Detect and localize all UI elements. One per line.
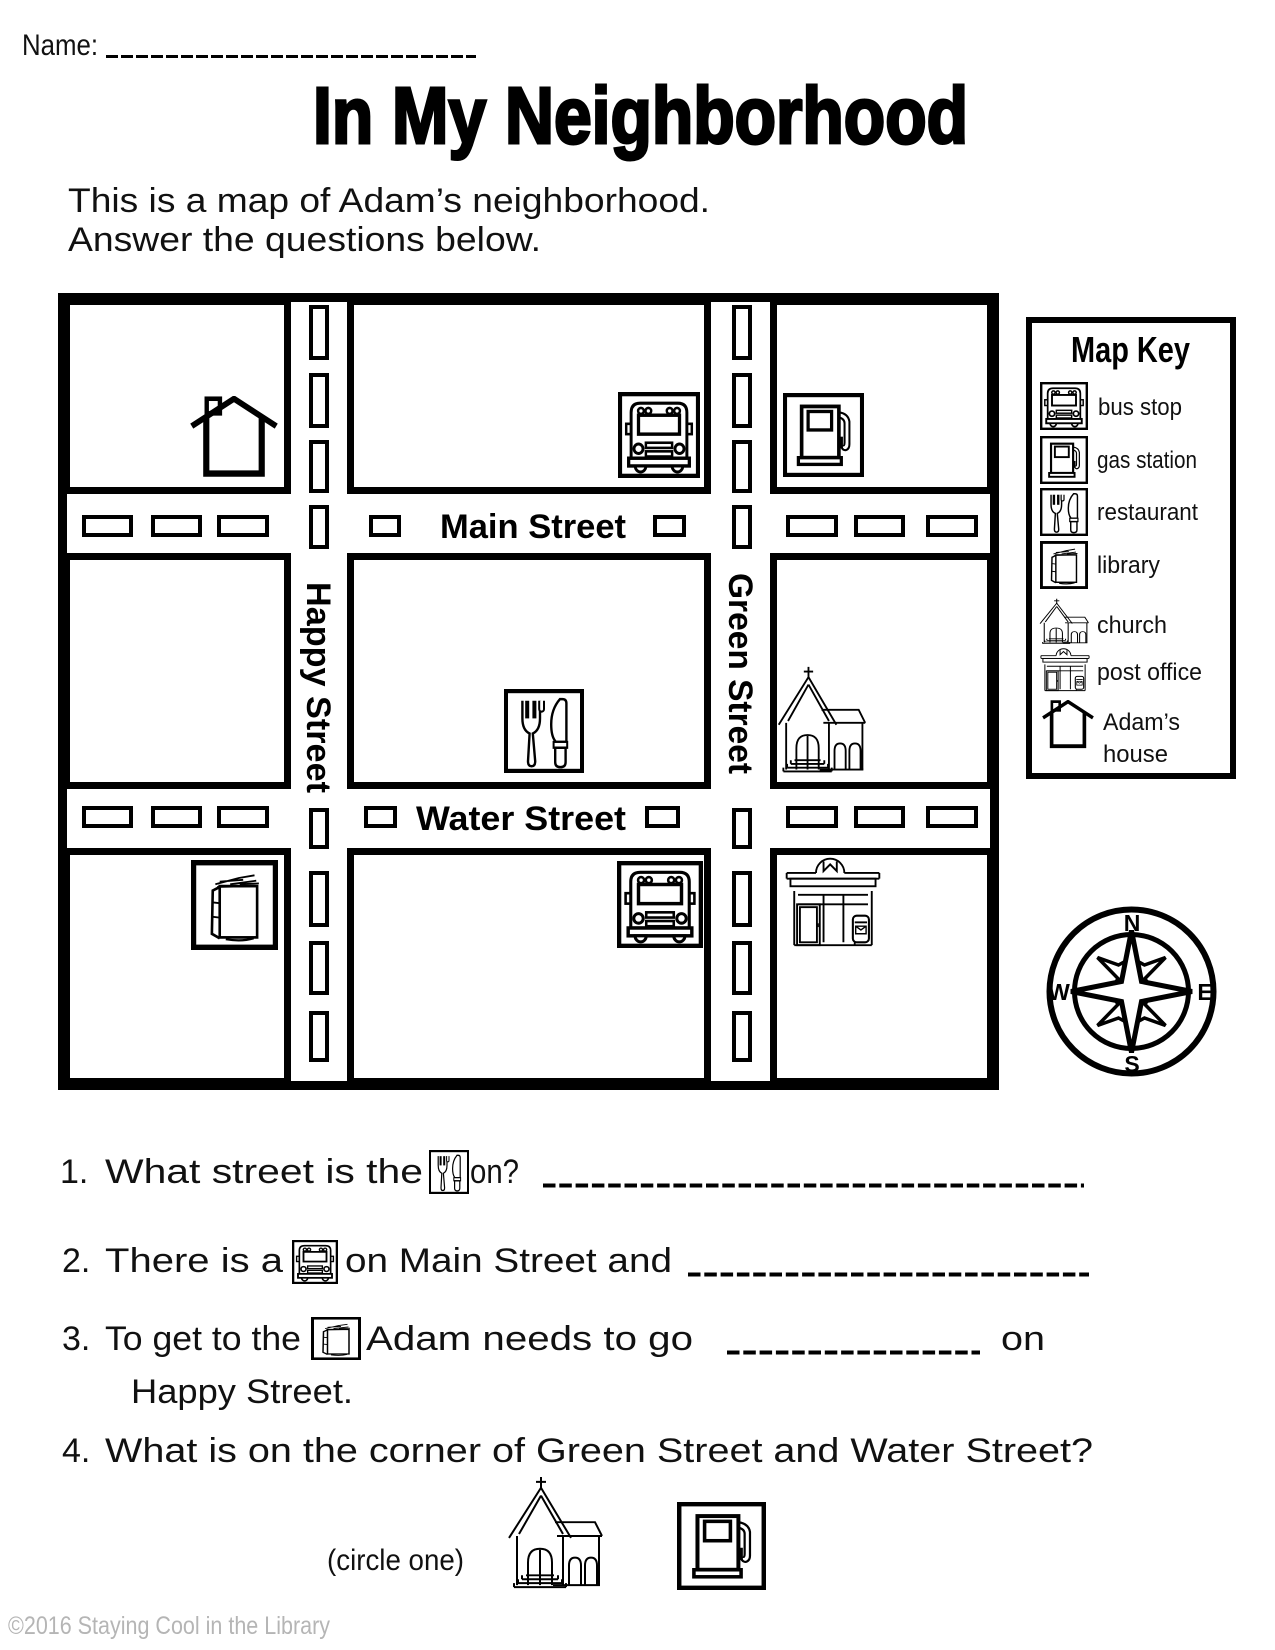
svg-text:restaurant: restaurant (1097, 499, 1198, 526)
svg-text:Happy Street: Happy Street (299, 582, 337, 793)
svg-text:To get to the: To get to the (105, 1320, 301, 1358)
svg-text:bus stop: bus stop (1098, 394, 1182, 421)
svg-text:Answer the questions below.: Answer the questions below. (68, 221, 541, 259)
svg-text:©2016 Staying Cool in the Libr: ©2016 Staying Cool in the Library (8, 1612, 330, 1640)
svg-text:on Main Street and: on Main Street and (345, 1242, 672, 1280)
svg-text:N: N (1124, 910, 1141, 936)
svg-text:4.: 4. (62, 1432, 90, 1470)
svg-text:Adam needs to go: Adam needs to go (366, 1320, 693, 1358)
svg-text:Water Street: Water Street (416, 800, 626, 838)
svg-text:Happy Street.: Happy Street. (131, 1373, 353, 1411)
svg-text:W: W (1048, 979, 1070, 1005)
svg-text:S: S (1124, 1051, 1139, 1077)
svg-text:E: E (1197, 979, 1212, 1005)
svg-text:This is a map of Adam’s neighb: This is a map of Adam’s neighborhood. (68, 182, 710, 220)
svg-text:Name:: Name: (22, 29, 98, 62)
svg-text:1.: 1. (60, 1153, 88, 1191)
svg-text:Green Street: Green Street (721, 573, 759, 774)
svg-text:library: library (1097, 552, 1160, 579)
svg-text:house: house (1103, 741, 1168, 768)
svg-text:3.: 3. (62, 1320, 90, 1358)
svg-text:(circle one): (circle one) (327, 1544, 464, 1577)
svg-text:gas station: gas station (1097, 447, 1197, 474)
svg-text:Adam’s: Adam’s (1103, 709, 1180, 736)
svg-text:Main Street: Main Street (440, 508, 626, 546)
svg-text:Map Key: Map Key (1071, 329, 1190, 370)
svg-text:What is on the corner of Green: What is on the corner of Green Street an… (105, 1432, 1093, 1470)
svg-text:2.: 2. (62, 1242, 90, 1280)
svg-text:What street is the: What street is the (105, 1153, 423, 1191)
svg-text:on?: on? (470, 1153, 519, 1191)
svg-text:In My Neighborhood: In My Neighborhood (313, 71, 968, 160)
svg-text:There is a: There is a (105, 1242, 283, 1280)
svg-text:post office: post office (1097, 659, 1202, 686)
svg-text:church: church (1097, 612, 1167, 639)
svg-text:on: on (1001, 1320, 1045, 1358)
